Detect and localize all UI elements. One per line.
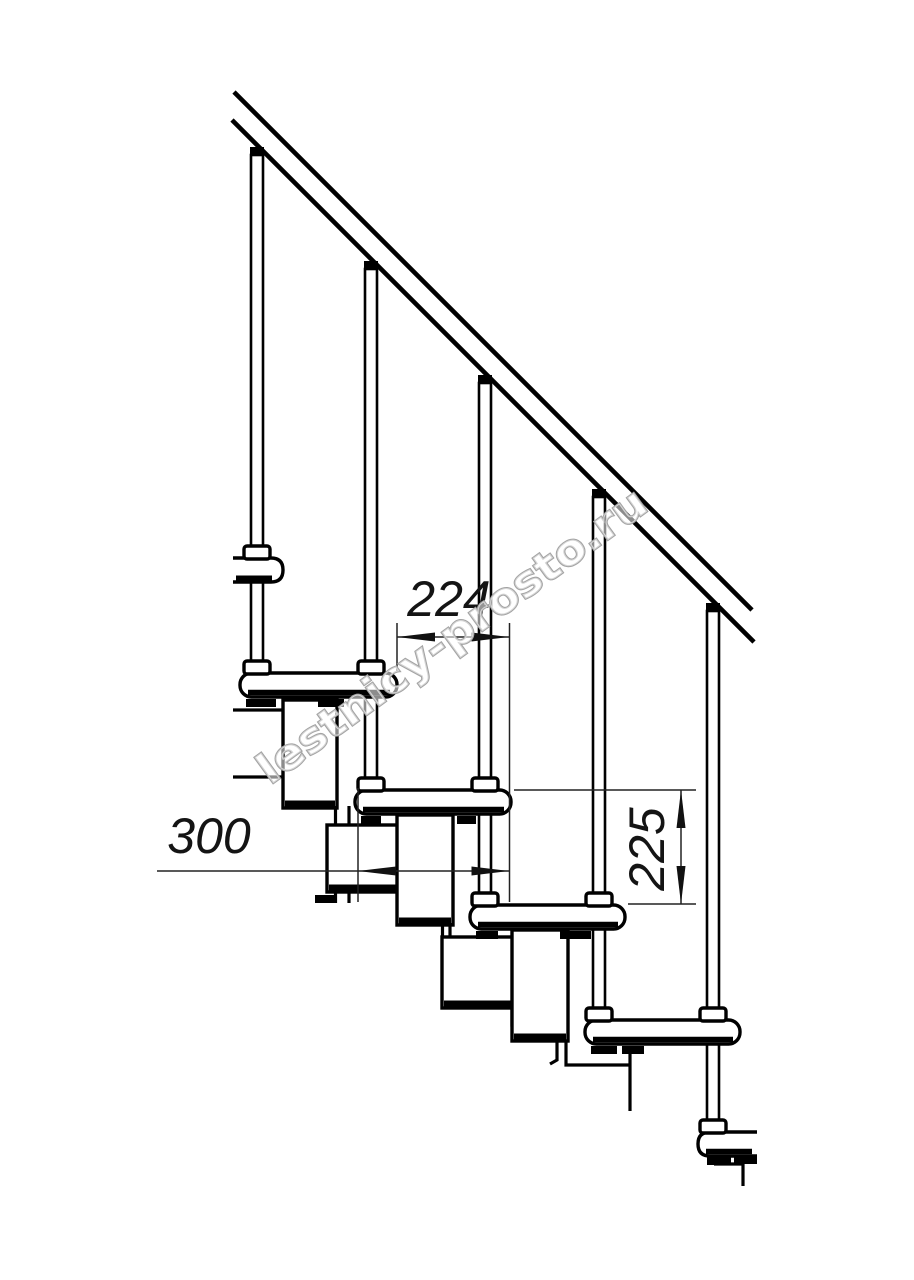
arrowhead-down-icon <box>677 866 686 904</box>
baluster-collar <box>358 778 384 791</box>
tread-foot <box>476 931 498 939</box>
baluster <box>365 269 377 661</box>
technical-drawing-canvas: 224 300 225 lestnicy-prosto.ru <box>0 0 914 1280</box>
arrowhead-up-icon <box>677 790 686 828</box>
square-module <box>327 825 403 892</box>
baluster-lower-segment <box>593 929 605 1008</box>
baluster-collar <box>472 893 498 906</box>
support-module-chain <box>233 700 757 1186</box>
tread-foot <box>246 699 276 707</box>
baluster <box>707 611 719 1008</box>
baluster-lower-segment <box>251 582 263 661</box>
baluster-lower-segment <box>479 814 491 893</box>
tread-foot <box>707 1157 731 1165</box>
baluster-collar <box>586 893 612 906</box>
baluster-collar <box>472 778 498 791</box>
baluster-collar <box>700 1120 726 1133</box>
handrail <box>232 92 754 642</box>
support-column <box>512 930 568 1041</box>
module-stub <box>315 895 337 903</box>
tread-foot <box>361 816 381 824</box>
baluster-collar <box>586 1008 612 1021</box>
tread-foot <box>560 931 591 939</box>
baluster-collar <box>700 1008 726 1021</box>
handrail-top-line <box>234 92 752 610</box>
tread-foot <box>622 1046 644 1054</box>
support-column <box>397 815 453 925</box>
staircase-drawing: 224 300 225 lestnicy-prosto.ru <box>0 0 914 1280</box>
handrail-bottom-line <box>232 120 754 642</box>
baluster-lower-segment <box>707 1044 719 1120</box>
baluster-collar <box>244 546 270 559</box>
baluster <box>251 155 263 546</box>
dimension-label-225: 225 <box>619 807 675 892</box>
square-module <box>442 937 517 1008</box>
tread-foot <box>591 1046 617 1054</box>
dimension-label-300: 300 <box>167 808 251 864</box>
baluster-collar <box>244 661 270 674</box>
tread-foot <box>457 816 476 824</box>
treads <box>233 558 757 1165</box>
cropped-module-lines <box>714 1164 743 1186</box>
